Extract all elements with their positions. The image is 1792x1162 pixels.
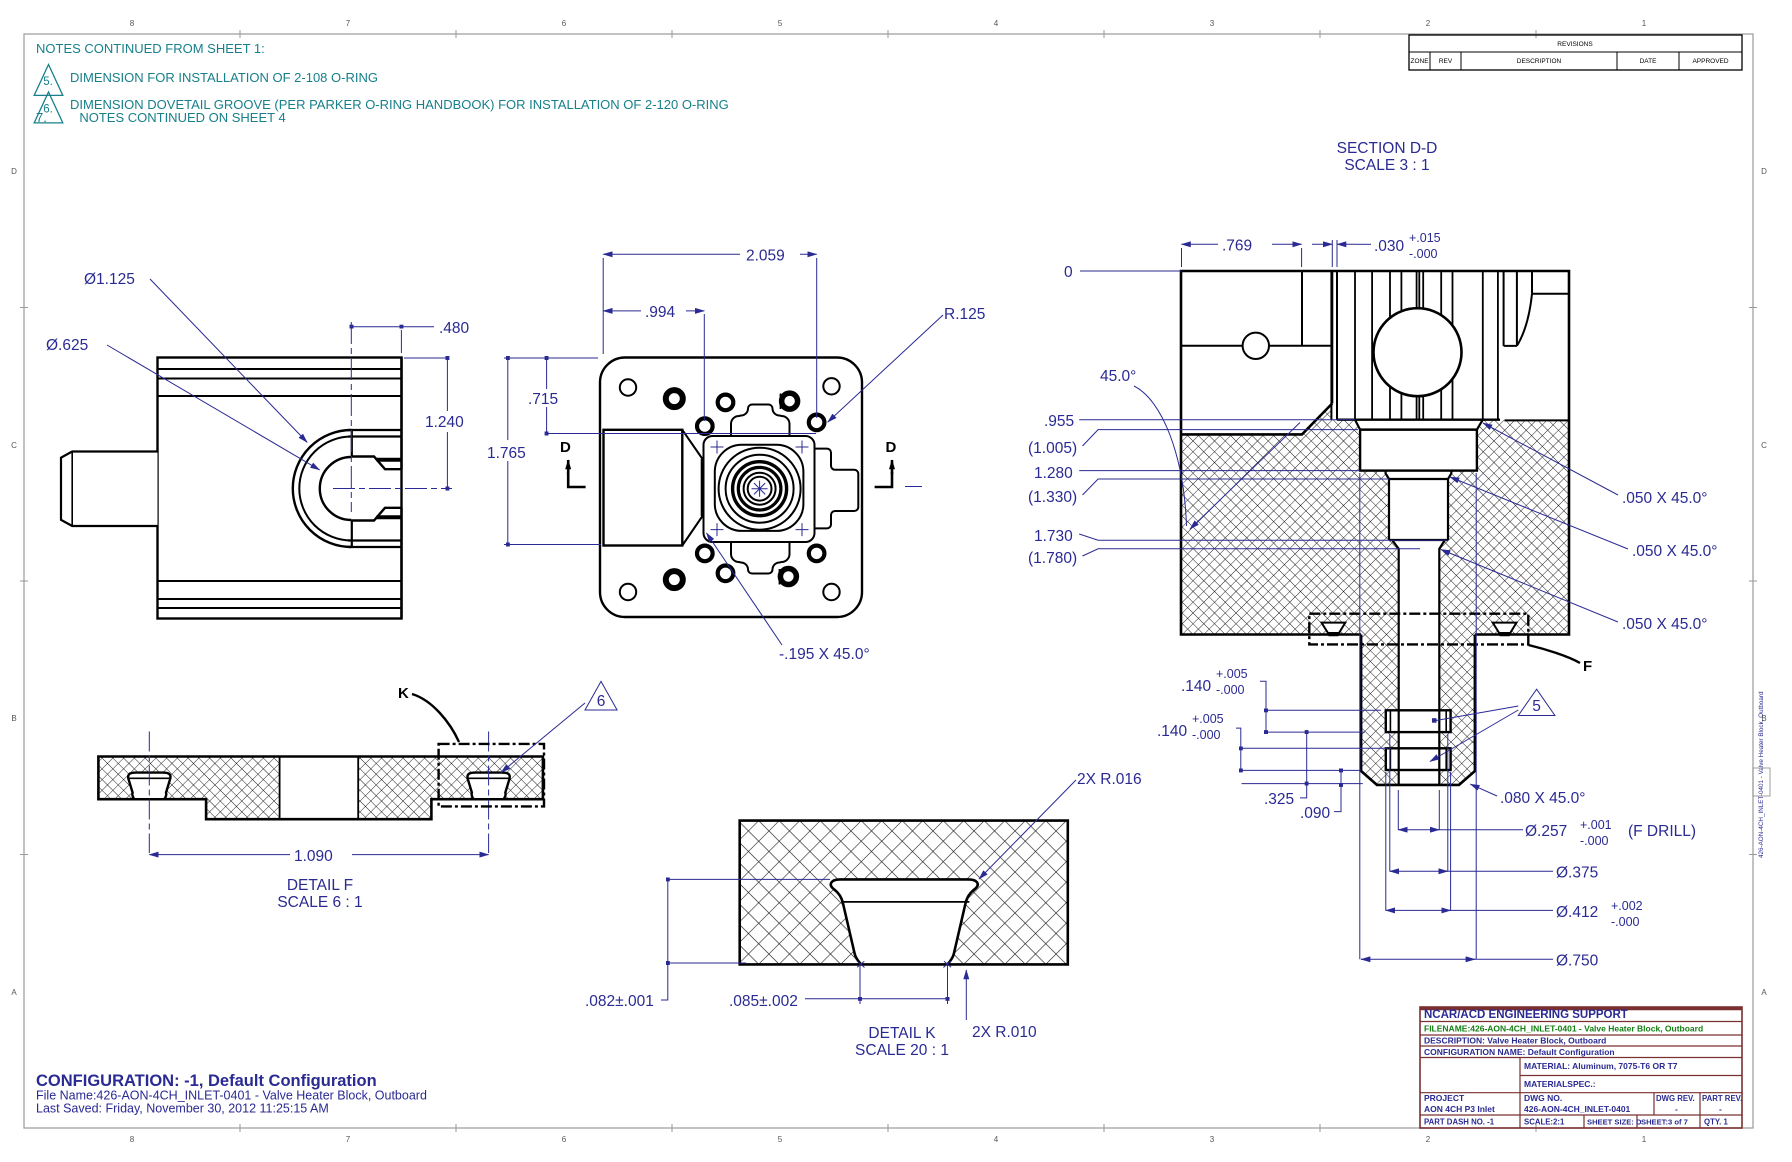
svg-text:5: 5	[778, 19, 783, 28]
svg-text:DESCRIPTION: DESCRIPTION	[1517, 58, 1562, 65]
svg-text:DWG NO.: DWG NO.	[1524, 1093, 1562, 1103]
svg-text:DETAIL K: DETAIL K	[868, 1025, 936, 1042]
svg-text:-: -	[1719, 1104, 1722, 1114]
svg-text:SHEET:3 of 7: SHEET:3 of 7	[1641, 1118, 1688, 1127]
svg-text:NOTES CONTINUED FROM SHEET 1:: NOTES CONTINUED FROM SHEET 1:	[36, 41, 265, 56]
svg-text:Ø.625: Ø.625	[46, 337, 88, 354]
svg-text:(1.330): (1.330)	[1028, 489, 1077, 506]
svg-text:7: 7	[346, 1135, 351, 1144]
svg-text:B: B	[11, 714, 16, 723]
svg-text:4: 4	[994, 1135, 999, 1144]
svg-text:0: 0	[1064, 264, 1073, 281]
svg-text:1: 1	[1642, 1135, 1647, 1144]
svg-text:2: 2	[1426, 19, 1431, 28]
svg-text:426-AON-4CH_INLET-0401: 426-AON-4CH_INLET-0401	[1524, 1104, 1631, 1114]
svg-text:REV: REV	[1439, 58, 1453, 65]
svg-text:APPROVED: APPROVED	[1692, 58, 1728, 65]
svg-text:-.000: -.000	[1192, 728, 1221, 742]
svg-text:QTY. 1: QTY. 1	[1704, 1118, 1728, 1127]
svg-text:-.000: -.000	[1216, 683, 1245, 697]
svg-text:DATE: DATE	[1640, 58, 1658, 65]
svg-text:6.: 6.	[43, 104, 53, 116]
svg-text:Ø1.125: Ø1.125	[84, 271, 135, 288]
svg-text:.955: .955	[1044, 413, 1074, 430]
svg-text:Ø.750: Ø.750	[1556, 953, 1599, 970]
svg-text:Ø.375: Ø.375	[1556, 865, 1598, 882]
svg-text:426-AON-4CH_INLET-0401 - Valve: 426-AON-4CH_INLET-0401 - Valve Heater Bl…	[1758, 691, 1765, 858]
svg-text:PART DASH NO. -1: PART DASH NO. -1	[1424, 1118, 1495, 1127]
svg-text:6: 6	[597, 693, 606, 710]
svg-text:Last Saved: Friday, November: Last Saved: Friday, November 30, 2012 11…	[36, 1102, 329, 1116]
svg-text:Ø.412: Ø.412	[1556, 904, 1598, 921]
svg-text:.050 X 45.0°: .050 X 45.0°	[1622, 616, 1708, 633]
svg-text:+.002: +.002	[1611, 899, 1643, 913]
svg-text:.082±.001: .082±.001	[585, 993, 654, 1010]
svg-text:2: 2	[1426, 1135, 1431, 1144]
svg-text:2X R.010: 2X R.010	[972, 1024, 1037, 1041]
svg-text:.085±.002: .085±.002	[729, 993, 798, 1010]
svg-text:2.059: 2.059	[746, 248, 785, 265]
svg-text:.480: .480	[439, 320, 470, 337]
svg-text:REVISIONS: REVISIONS	[1557, 41, 1593, 48]
svg-text:-.195 X 45.0°: -.195 X 45.0°	[779, 646, 870, 663]
svg-text:.080 X 45.0°: .080 X 45.0°	[1500, 790, 1586, 807]
svg-text:ZONE: ZONE	[1410, 58, 1429, 65]
svg-text:-: -	[1675, 1104, 1678, 1114]
svg-text:+.005: +.005	[1216, 667, 1248, 681]
svg-text:7: 7	[346, 19, 351, 28]
svg-text:F: F	[1583, 658, 1592, 675]
svg-text:1.240: 1.240	[425, 414, 464, 431]
svg-text:MATERIAL: Aluminum, 7075-T6 OR: MATERIAL: Aluminum, 7075-T6 OR T7	[1524, 1061, 1678, 1071]
svg-text:SECTION D-D: SECTION D-D	[1337, 140, 1438, 157]
svg-text:PROJECT: PROJECT	[1424, 1093, 1465, 1103]
svg-text:(1.005): (1.005)	[1028, 440, 1077, 457]
svg-text:4: 4	[994, 19, 999, 28]
svg-text:8: 8	[130, 1135, 135, 1144]
svg-text:SCALE 6 : 1: SCALE 6 : 1	[277, 894, 362, 911]
svg-text:DWG REV.: DWG REV.	[1656, 1094, 1695, 1103]
svg-text:A: A	[1761, 988, 1767, 997]
svg-text:SCALE:2:1: SCALE:2:1	[1524, 1118, 1565, 1127]
svg-text:-.000: -.000	[1611, 915, 1640, 929]
svg-text:.050 X 45.0°: .050 X 45.0°	[1632, 543, 1718, 560]
svg-text:(1.780): (1.780)	[1028, 550, 1077, 567]
svg-text:DESCRIPTION: Valve Heater Bloc: DESCRIPTION: Valve Heater Block, Outboar…	[1424, 1036, 1606, 1046]
svg-text:.090: .090	[1300, 805, 1331, 822]
svg-text:D: D	[11, 167, 17, 176]
svg-text:+.005: +.005	[1192, 712, 1224, 726]
svg-text:NCAR/ACD ENGINEERING SUPPORT: NCAR/ACD ENGINEERING SUPPORT	[1424, 1009, 1628, 1021]
svg-text:3: 3	[1210, 19, 1215, 28]
svg-text:1.730: 1.730	[1034, 528, 1073, 545]
svg-text:AON 4CH P3 Inlet: AON 4CH P3 Inlet	[1424, 1104, 1495, 1114]
svg-text:5: 5	[778, 1135, 783, 1144]
svg-text:.715: .715	[528, 391, 558, 408]
svg-text:PART REV.: PART REV.	[1702, 1094, 1742, 1103]
svg-text:7. NOTES CONTINUED ON: 7. NOTES CONTINUED ON SHEET 4	[36, 110, 286, 125]
svg-text:6: 6	[562, 19, 567, 28]
svg-text:CONFIGURATION: -1, Default Con: CONFIGURATION: -1, Default Configuration	[36, 1072, 377, 1090]
svg-text:MATERIALSPEC.:: MATERIALSPEC.:	[1524, 1079, 1596, 1089]
svg-text:CONFIGURATION NAME: Default Co: CONFIGURATION NAME: Default Configuratio…	[1424, 1047, 1615, 1057]
svg-text:D: D	[886, 439, 897, 456]
svg-text:1.280: 1.280	[1034, 465, 1073, 482]
svg-text:Ø.257: Ø.257	[1525, 823, 1567, 840]
svg-text:-.000: -.000	[1580, 834, 1609, 848]
svg-text:.050 X 45.0°: .050 X 45.0°	[1622, 490, 1708, 507]
svg-text:DIMENSION FOR INSTALLATION OF: DIMENSION FOR INSTALLATION OF 2-108 O-RI…	[70, 70, 378, 85]
svg-text:.325: .325	[1264, 791, 1294, 808]
svg-text:.769: .769	[1222, 238, 1252, 255]
svg-text:1: 1	[1642, 19, 1647, 28]
svg-text:FILENAME:426-AON-4CH_INLET-040: FILENAME:426-AON-4CH_INLET-0401 - Valve …	[1424, 1024, 1703, 1034]
svg-text:R.125: R.125	[944, 306, 985, 323]
svg-text:SCALE 20 : 1: SCALE 20 : 1	[855, 1042, 949, 1059]
svg-text:8: 8	[130, 19, 135, 28]
svg-text:SCALE 3 : 1: SCALE 3 : 1	[1344, 157, 1429, 174]
svg-text:C: C	[11, 441, 17, 450]
svg-text:.140: .140	[1157, 723, 1188, 740]
svg-text:1.090: 1.090	[294, 848, 333, 865]
svg-text:-.000: -.000	[1409, 247, 1438, 261]
svg-text:(F DRILL): (F DRILL)	[1628, 823, 1696, 840]
svg-text:SHEET SIZE: D: SHEET SIZE: D	[1587, 1118, 1642, 1127]
svg-text:DETAIL F: DETAIL F	[287, 877, 353, 894]
svg-text:2X R.016: 2X R.016	[1077, 771, 1142, 788]
svg-text:D: D	[560, 439, 571, 456]
svg-text:.994: .994	[645, 304, 676, 321]
svg-text:A: A	[11, 988, 17, 997]
svg-text:.030: .030	[1374, 238, 1405, 255]
svg-text:File Name:426-AON-4CH_INLET-04: File Name:426-AON-4CH_INLET-0401 - Valve…	[36, 1089, 427, 1103]
svg-text:6: 6	[562, 1135, 567, 1144]
svg-text:3: 3	[1210, 1135, 1215, 1144]
svg-text:45.0°: 45.0°	[1100, 368, 1136, 385]
svg-text:1.765: 1.765	[487, 445, 526, 462]
svg-text:.140: .140	[1181, 678, 1212, 695]
svg-text:+.001: +.001	[1580, 818, 1612, 832]
svg-text:C: C	[1761, 441, 1767, 450]
svg-text:+.015: +.015	[1409, 231, 1441, 245]
svg-text:5.: 5.	[43, 76, 53, 88]
svg-text:K: K	[398, 685, 409, 702]
svg-text:5: 5	[1532, 698, 1541, 715]
svg-text:D: D	[1761, 167, 1767, 176]
